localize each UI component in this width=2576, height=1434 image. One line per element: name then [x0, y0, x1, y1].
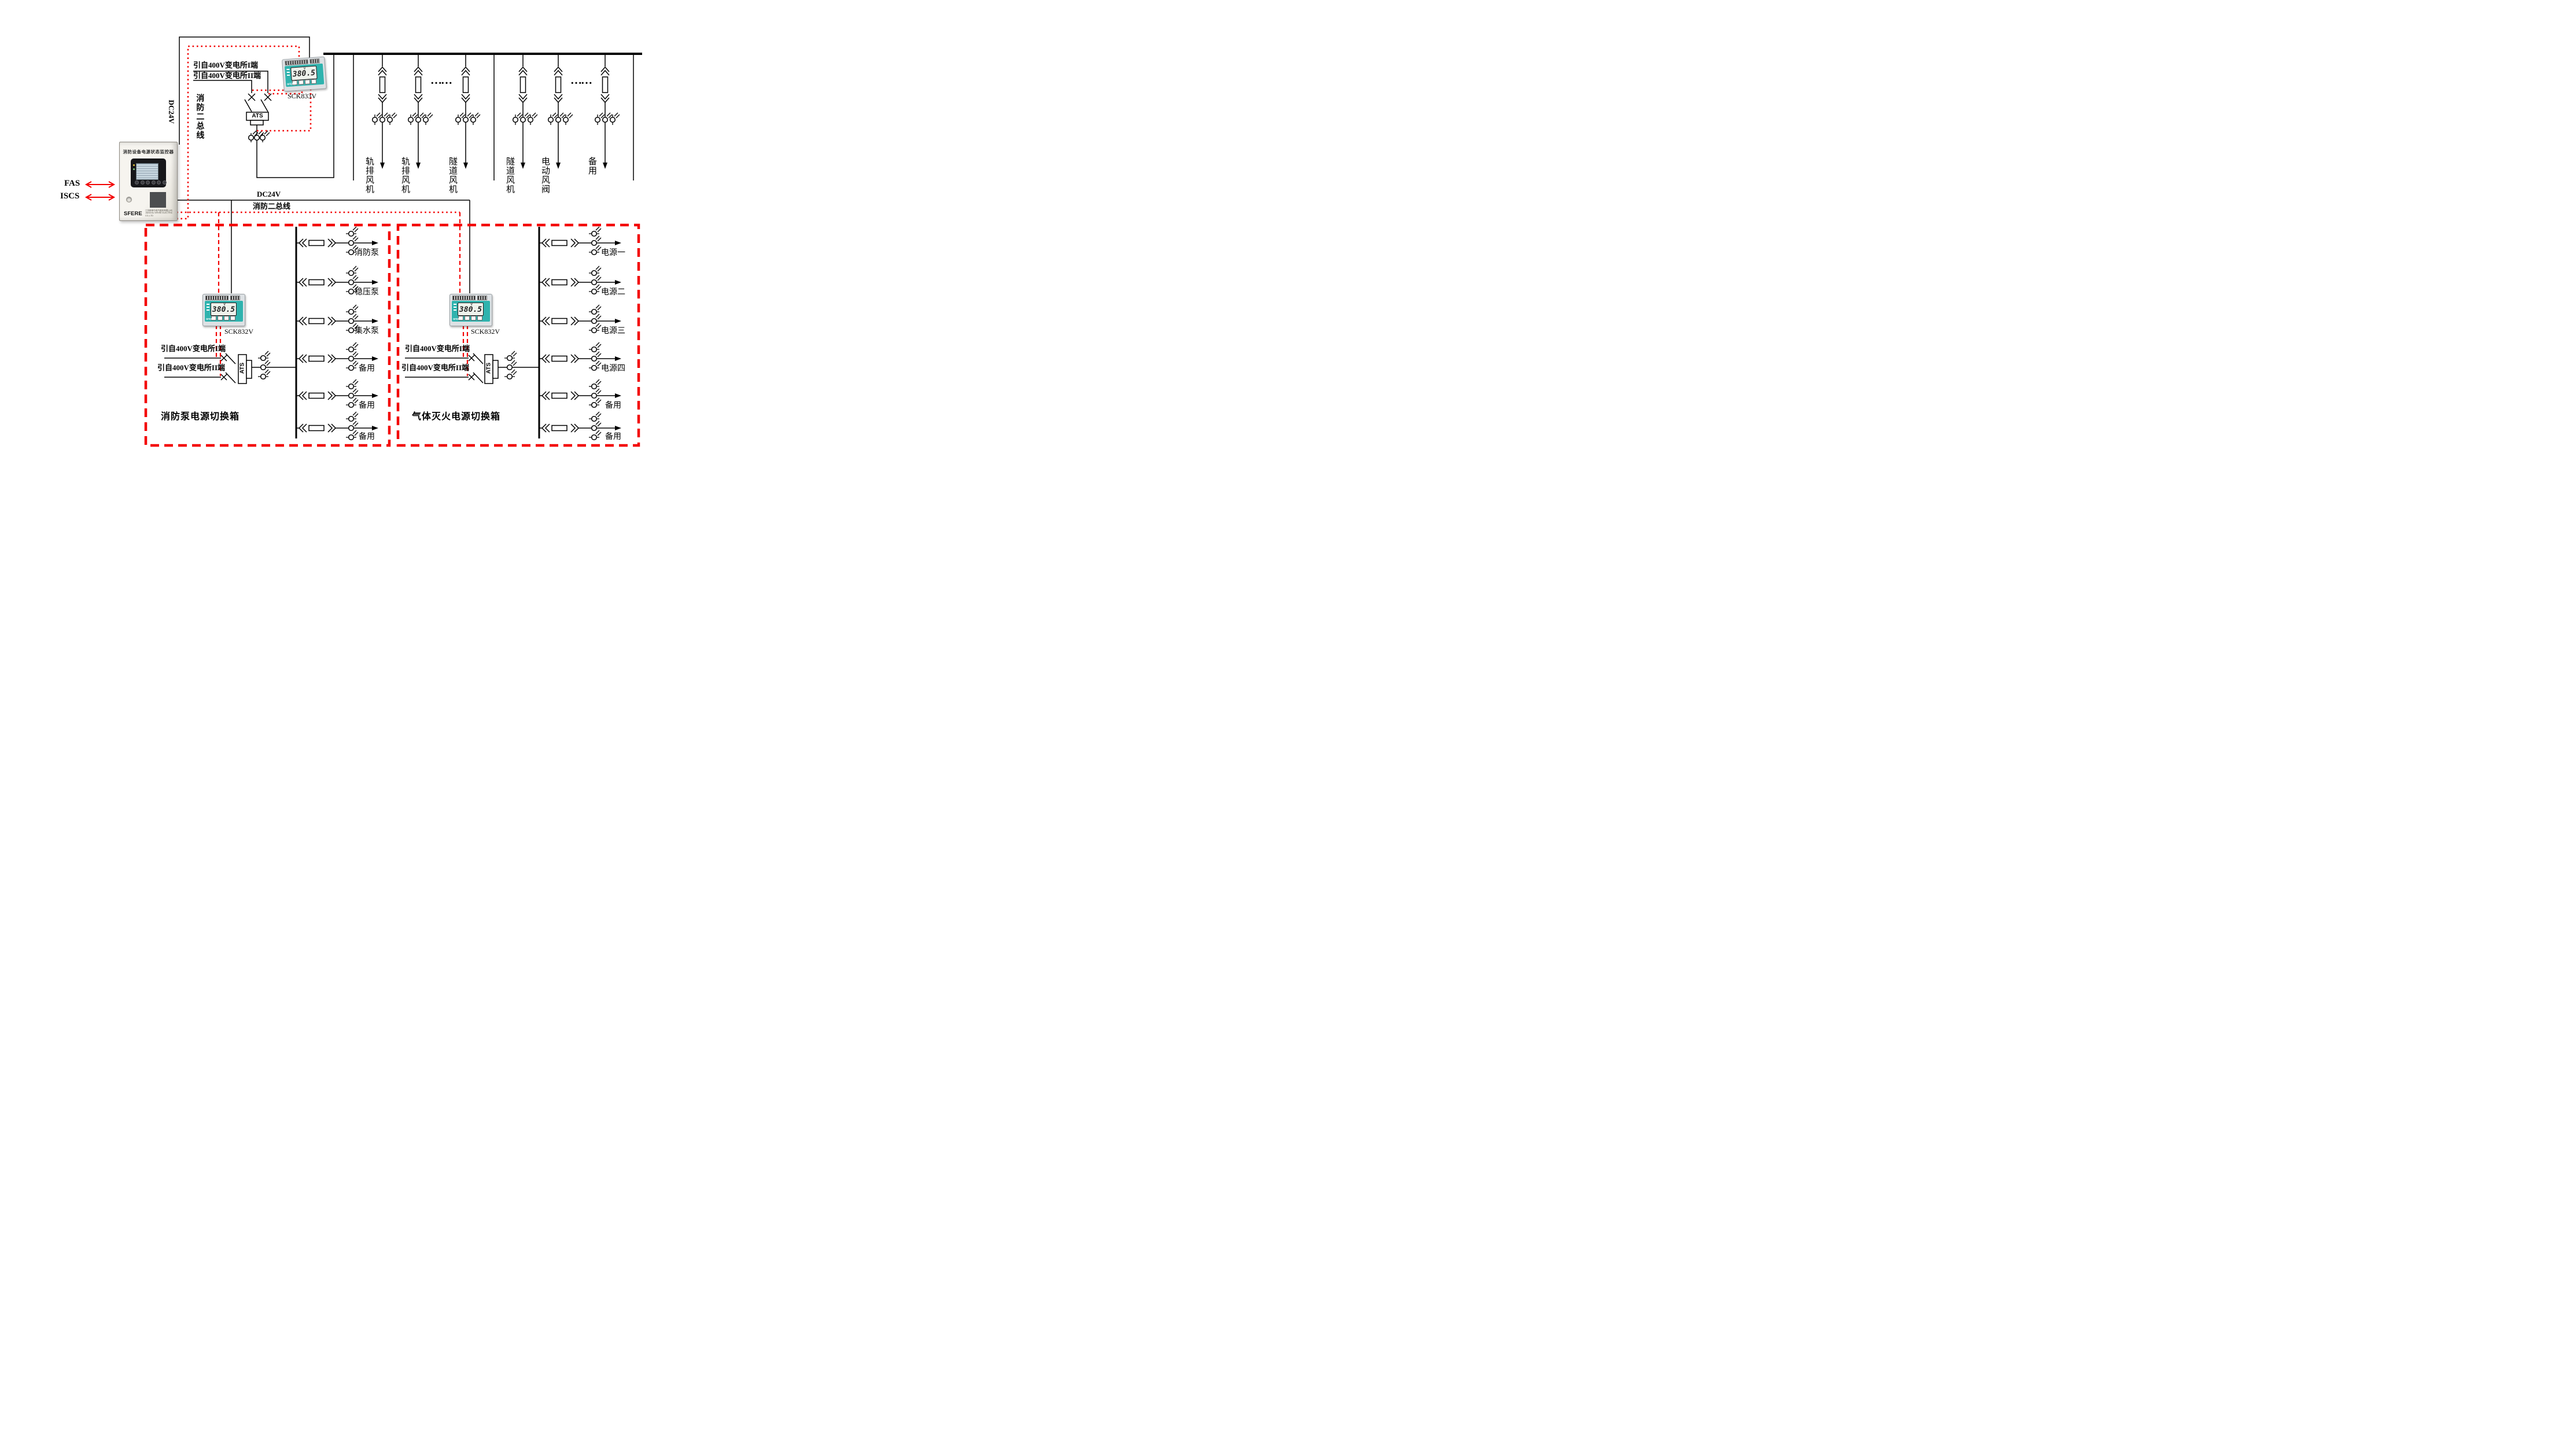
meter-left-sck832v: V 380.5 SFERE	[202, 294, 245, 326]
meter-sck833v: V 380.5 SFERE	[282, 56, 327, 91]
ct-circle-icon	[592, 384, 597, 389]
right-arrowhead-icon	[372, 280, 378, 285]
ct-circle-icon	[513, 117, 518, 123]
down-arrowhead-icon	[556, 163, 561, 169]
ct-slash-icon	[353, 389, 358, 394]
ct-circle-icon	[592, 271, 597, 276]
chevron-up-icon	[519, 67, 527, 75]
ats-box-top-lower	[250, 120, 263, 125]
chevron-right-icon	[328, 278, 336, 286]
chevron-up-icon	[601, 67, 609, 75]
box-feeder-breaker-rect	[552, 356, 567, 362]
ct-slash-icon	[596, 305, 601, 310]
ct-circle-icon	[592, 309, 597, 315]
chevron-up-icon	[378, 67, 386, 75]
box-feeder-breaker-rect	[309, 426, 324, 431]
ct-circle-icon	[592, 416, 597, 422]
ct-slash-icon	[596, 352, 601, 357]
busbars	[296, 54, 642, 438]
monitor-company: 江苏斯菲尔电气股份有限公司 JIANGSU SFERE ELECTRIC CO.…	[145, 209, 175, 217]
wire-source2-top	[193, 80, 252, 93]
monitor-printer-slot	[150, 192, 166, 208]
meter-brand: SFERE	[287, 82, 296, 86]
monitor-screen	[136, 163, 159, 180]
right-arrowhead-icon	[372, 241, 378, 245]
ct-circle-icon	[349, 319, 354, 324]
left-meter-model: SCK832V	[224, 328, 253, 336]
right-arrowhead-icon	[615, 280, 621, 285]
ct-slash-icon	[596, 227, 601, 232]
chevron-down-icon	[519, 94, 527, 102]
right-meter-model: SCK832V	[471, 328, 500, 336]
ats-box-right-lower	[493, 360, 498, 378]
right-arrowhead-icon	[615, 426, 621, 430]
meter-lcd: V 380.5	[211, 303, 237, 316]
ct-circle-icon	[521, 117, 526, 123]
ct-circle-icon	[592, 328, 597, 333]
ct-slash-icon	[532, 113, 537, 118]
ellipsis-group2: ……	[570, 74, 591, 87]
chevron-left-icon	[299, 392, 307, 400]
ct-slash-icon	[353, 421, 358, 426]
top-source2-label: 引自400V变电所II端	[193, 72, 261, 80]
ct-circle-icon	[507, 365, 513, 370]
leftbox-source2-line	[164, 373, 235, 383]
ct-circle-icon	[592, 356, 597, 362]
top-feeder-breaker-rect	[521, 77, 526, 93]
top-feeder-label: 隧道风机	[505, 157, 514, 194]
down-arrowhead-icon	[521, 163, 525, 169]
ct-circle-icon	[592, 231, 597, 237]
monitor-brand: SFERE	[124, 211, 142, 217]
top-feeder-label: 电动风阀	[540, 157, 549, 194]
box-feeder-breaker-rect	[552, 280, 567, 285]
ct-circle-icon	[592, 403, 597, 408]
ct-slash-icon	[353, 236, 358, 241]
iscs-label: ISCS	[60, 191, 79, 201]
ct-circle-icon	[563, 117, 569, 123]
ct-circle-icon	[507, 374, 513, 379]
chevron-right-icon	[571, 239, 578, 247]
chevron-left-icon	[542, 278, 550, 286]
ct-circle-icon	[349, 280, 354, 285]
ct-circle-icon	[456, 117, 461, 123]
ct-slash-icon	[353, 275, 358, 281]
ct-circle-icon	[528, 117, 533, 123]
right-arrowhead-icon	[615, 319, 621, 323]
ct-circle-icon	[260, 135, 266, 141]
ct-circle-icon	[463, 117, 469, 123]
chevron-up-icon	[414, 67, 422, 75]
ct-circle-icon	[261, 365, 266, 370]
ct-circle-icon	[349, 231, 354, 237]
ct-circle-icon	[592, 280, 597, 285]
box-feeder-breaker-rect	[309, 356, 324, 362]
ct-circle-icon	[592, 393, 597, 399]
ct-slash-icon	[353, 227, 358, 232]
fas-arrow	[86, 182, 114, 187]
ct-circle-icon	[249, 135, 254, 141]
rightbox-title: 气体灭火电源切换箱	[412, 412, 500, 422]
ct-slash-icon	[428, 113, 433, 118]
ct-circle-icon	[592, 366, 597, 371]
chevron-right-icon	[571, 317, 578, 325]
meter-brand: SFERE	[206, 318, 215, 320]
ct-circle-icon	[592, 319, 597, 324]
rightbox-source2-line	[405, 373, 483, 383]
ats-right-label: ATS	[486, 358, 492, 379]
chevron-right-icon	[571, 392, 578, 400]
chevron-left-icon	[299, 239, 307, 247]
right-arrowhead-icon	[372, 393, 378, 398]
meter-unit: V	[471, 303, 473, 307]
ct-slash-icon	[596, 389, 601, 394]
ct-circle-icon	[349, 356, 354, 362]
ct-slash-icon	[596, 421, 601, 426]
box-feeder-breaker-rect	[552, 426, 567, 431]
ct-slash-icon	[265, 370, 270, 375]
rightbox-feeder-label: 电源三	[599, 327, 627, 336]
rightbox-source2-label: 引自400V变电所II端	[401, 364, 469, 372]
meter-terminals2-icon	[230, 296, 240, 300]
meter-unit: V	[224, 303, 226, 307]
ct-circle-icon	[349, 347, 354, 352]
right-arrowhead-icon	[615, 356, 621, 361]
top-feeder-label: 备用	[587, 157, 596, 175]
chevron-left-icon	[542, 239, 550, 247]
ct-circle-icon	[261, 356, 266, 361]
ct-circle-icon	[416, 117, 421, 123]
iscs-arrow	[86, 194, 114, 200]
right-arrowhead-icon	[372, 426, 378, 430]
meter-side-ticks-icon	[207, 304, 209, 311]
leftbox-feeder-label: 备用	[353, 401, 381, 410]
generated-feeders	[249, 55, 621, 440]
top-feeder-breaker-rect	[380, 77, 385, 93]
firebus-mid-label: 消防二总线	[253, 202, 290, 211]
leftbox-title: 消防泵电源切换箱	[161, 412, 239, 422]
rightbox-feeder-label: 电源四	[599, 364, 627, 373]
box-feeder-breaker-rect	[309, 241, 324, 246]
ct-slash-icon	[265, 351, 270, 356]
ct-slash-icon	[596, 412, 601, 417]
right-arrowhead-icon	[615, 393, 621, 398]
ct-slash-icon	[596, 236, 601, 241]
ct-slash-icon	[353, 379, 358, 385]
ats-top-label: ATS	[247, 113, 268, 119]
chevron-down-icon	[554, 94, 562, 102]
ct-circle-icon	[423, 117, 429, 123]
meter-face: V 380.5 SFERE	[205, 301, 243, 322]
chevron-down-icon	[378, 94, 386, 102]
ct-circle-icon	[592, 347, 597, 352]
chevron-right-icon	[571, 278, 578, 286]
monitor-keyhole-icon[interactable]	[126, 197, 132, 202]
top-feeder-label: 轨排风机	[364, 157, 373, 194]
meter-terminals-icon	[452, 296, 476, 300]
chevron-up-icon	[462, 67, 470, 75]
box-feeder-breaker-rect	[552, 241, 567, 246]
chevron-left-icon	[542, 424, 550, 432]
rightbox-source1-line	[405, 353, 483, 364]
meter-lcd: V 380.5	[458, 303, 484, 316]
box-feeder-breaker-rect	[309, 319, 324, 324]
ellipsis-group1: ……	[430, 74, 451, 87]
chevron-down-icon	[601, 94, 609, 102]
top-feeder-breaker-rect	[463, 77, 469, 93]
chevron-down-icon	[462, 94, 470, 102]
meter-terminals-icon	[205, 296, 229, 300]
right-arrowhead-icon	[372, 356, 378, 361]
ct-circle-icon	[261, 374, 266, 379]
ct-circle-icon	[610, 117, 616, 123]
ct-circle-icon	[349, 426, 354, 431]
ct-slash-icon	[353, 305, 358, 310]
chevron-left-icon	[299, 278, 307, 286]
rightbox-feeder-label: 备用	[599, 433, 627, 441]
leftbox-feeder-label: 稳压泵	[353, 288, 381, 297]
ct-circle-icon	[349, 416, 354, 422]
fas-label: FAS	[64, 179, 80, 189]
top-source1-label: 引自400V变电所I端	[193, 61, 258, 69]
ct-circle-icon	[603, 117, 608, 123]
ct-slash-icon	[596, 314, 601, 319]
monitor-panel	[131, 158, 166, 187]
chevron-right-icon	[328, 392, 336, 400]
interface-arrows	[86, 182, 114, 200]
meter-side-ticks-icon	[454, 304, 456, 311]
leftbox-source1-line	[164, 353, 235, 364]
chevron-left-icon	[542, 355, 550, 363]
rightbox-feeder-label: 备用	[599, 401, 627, 410]
leftbox-source1-label: 引自400V变电所I端	[161, 345, 226, 353]
ct-slash-icon	[353, 342, 358, 348]
chevron-left-icon	[542, 392, 550, 400]
ct-slash-icon	[511, 351, 517, 356]
chevron-right-icon	[571, 355, 578, 363]
ct-circle-icon	[556, 117, 561, 123]
chevron-right-icon	[328, 317, 336, 325]
ct-slash-icon	[596, 266, 601, 271]
ct-slash-icon	[511, 360, 517, 366]
box-feeder-breaker-rect	[552, 393, 567, 399]
meter-right-sck832v: V 380.5 SFERE	[449, 294, 492, 326]
ct-circle-icon	[471, 117, 476, 123]
ct-slash-icon	[353, 412, 358, 417]
ct-slash-icon	[353, 266, 358, 271]
chevron-left-icon	[299, 317, 307, 325]
meter-face: V 380.5 SFERE	[285, 64, 324, 87]
top-feeder-label: 轨排风机	[400, 157, 409, 194]
ct-circle-icon	[595, 117, 600, 123]
box-feeder-breaker-rect	[309, 393, 324, 399]
ct-slash-icon	[392, 113, 397, 118]
monitor-title: 消防设备电源状态监控器	[120, 149, 177, 155]
rightbox-source1-label: 引自400V变电所I端	[405, 345, 470, 353]
wiring-svg	[0, 0, 858, 478]
box-feeder-breaker-rect	[309, 280, 324, 285]
ct-slash-icon	[264, 131, 270, 136]
ats-symbols	[238, 112, 498, 384]
leftbox-feeder-label: 集水泵	[353, 327, 381, 336]
ct-circle-icon	[373, 117, 378, 123]
rightbox-feeder-label: 电源二	[599, 288, 627, 297]
chevron-left-icon	[299, 424, 307, 432]
chevron-up-icon	[554, 67, 562, 75]
leftbox-source2-label: 引自400V变电所II端	[157, 364, 225, 372]
meter-terminals2-icon	[477, 296, 487, 300]
chevron-right-icon	[328, 424, 336, 432]
dc24v-mid-label: DC24V	[257, 190, 281, 198]
ct-circle-icon	[548, 117, 554, 123]
ct-circle-icon	[592, 250, 597, 255]
ct-circle-icon	[349, 241, 354, 246]
monitor-led-icon	[133, 164, 135, 166]
ct-circle-icon	[592, 241, 597, 246]
ct-slash-icon	[596, 342, 601, 348]
right-arrowhead-icon	[615, 241, 621, 245]
diagram-stage: 消防设备电源状态监控器 SFERE 江苏斯菲尔电气股份有限公司 JIANGSU …	[0, 0, 858, 478]
chevron-left-icon	[542, 317, 550, 325]
breaker-top-right	[261, 94, 271, 112]
ct-slash-icon	[596, 275, 601, 281]
chevron-left-icon	[299, 355, 307, 363]
ct-circle-icon	[349, 271, 354, 276]
ct-circle-icon	[507, 356, 513, 361]
down-arrowhead-icon	[603, 163, 607, 169]
ats-left-label: ATS	[239, 358, 246, 379]
breaker-top-left	[245, 94, 255, 112]
monitor-led2-icon	[133, 168, 135, 170]
meter-side-ticks-icon	[286, 69, 290, 76]
top-feeder-breaker-rect	[556, 77, 561, 93]
chevron-right-icon	[328, 239, 336, 247]
ct-slash-icon	[353, 314, 358, 319]
meter-face: V 380.5 SFERE	[452, 301, 490, 322]
down-arrowhead-icon	[380, 163, 385, 169]
dc24v-vertical-label: DC24V	[167, 97, 175, 127]
meter-buttons[interactable]	[211, 316, 235, 320]
rightbox-feeder-label: 电源一	[599, 249, 627, 257]
ct-slash-icon	[567, 113, 573, 118]
meter-buttons[interactable]	[458, 316, 482, 320]
top-feeder-label: 隧道风机	[448, 157, 456, 194]
ct-circle-icon	[592, 426, 597, 431]
ct-circle-icon	[349, 384, 354, 389]
leftbox-feeder-label: 备用	[353, 364, 381, 373]
top-feeder-breaker-rect	[416, 77, 421, 93]
meter-brand: SFERE	[453, 318, 462, 320]
ct-circle-icon	[592, 289, 597, 294]
ct-slash-icon	[511, 370, 517, 375]
power-status-monitor: 消防设备电源状态监控器 SFERE 江苏斯菲尔电气股份有限公司 JIANGSU …	[119, 142, 178, 221]
ct-circle-icon	[388, 117, 393, 123]
firebus-vertical-label: 消防二总线	[195, 94, 204, 140]
ct-slash-icon	[265, 360, 270, 366]
ct-circle-icon	[380, 117, 385, 123]
ct-slash-icon	[614, 113, 620, 118]
ct-circle-icon	[349, 309, 354, 315]
ct-circle-icon	[408, 117, 414, 123]
top-feeder-breaker-rect	[603, 77, 608, 93]
chevron-right-icon	[571, 424, 578, 432]
meter-terminals2-icon	[309, 58, 320, 64]
ct-slash-icon	[475, 113, 480, 118]
meter-lcd: V 380.5	[290, 65, 317, 80]
ct-circle-icon	[255, 135, 260, 141]
meter-unit: V	[304, 67, 306, 71]
ct-circle-icon	[349, 393, 354, 399]
ct-circle-icon	[592, 435, 597, 440]
leftbox-feeder-label: 消防泵	[353, 249, 381, 257]
ct-slash-icon	[596, 379, 601, 385]
ct-slash-icon	[353, 352, 358, 357]
ats-box-left-lower	[246, 360, 252, 378]
down-arrowhead-icon	[416, 163, 421, 169]
down-arrowhead-icon	[463, 163, 468, 169]
right-arrowhead-icon	[372, 319, 378, 323]
box-feeder-breaker-rect	[552, 319, 567, 324]
leftbox-feeder-label: 备用	[353, 433, 381, 441]
monitor-buttons[interactable]	[135, 180, 167, 185]
sck833v-label: SCK833V	[288, 93, 316, 100]
chevron-right-icon	[328, 355, 336, 363]
chevron-down-icon	[414, 94, 422, 102]
